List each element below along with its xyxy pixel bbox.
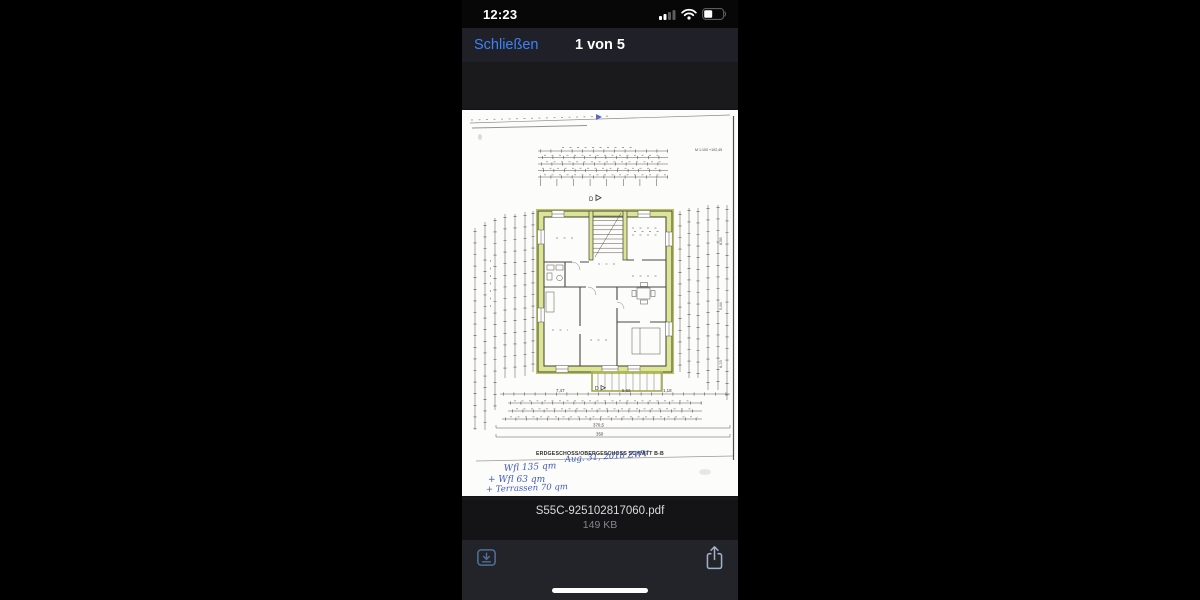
file-name: S55C-925102817060.pdf <box>462 505 738 517</box>
document-page[interactable]: M 1:100 +102,45 <box>462 110 738 496</box>
content-area: M 1:100 +102,45 <box>462 62 738 500</box>
status-bar: 12:23 <box>462 0 738 28</box>
svg-text:5,84: 5,84 <box>718 301 723 310</box>
scale-note: M 1:100 +102,45 <box>695 148 722 152</box>
svg-text:7,47: 7,47 <box>556 388 565 393</box>
handwriting-line3: + Terrassen 70 qm <box>486 482 568 495</box>
download-icon <box>475 546 498 569</box>
left-dimension-chains <box>475 211 533 430</box>
bottom-dimension-chains: 7,47 5,66 1,18 370,5 3 <box>496 388 730 437</box>
status-icons <box>659 8 727 20</box>
file-info-bar: S55C-925102817060.pdf 149 KB <box>462 500 738 540</box>
top-dimension-chains <box>538 148 668 183</box>
close-button[interactable]: Schließen <box>474 37 538 53</box>
status-time: 12:23 <box>483 7 517 22</box>
handwritten-notes: Aug. 31, 2018 ZWV Wfl 135 qm + Wfl 63 qm… <box>486 449 650 495</box>
right-dimension-chains: 8,85 5,84 8,23 <box>680 205 727 400</box>
download-button[interactable] <box>475 546 498 572</box>
screenshot-canvas: 12:23 <box>0 0 1200 600</box>
page-indicator: 1 von 5 <box>575 37 625 53</box>
share-button[interactable] <box>704 544 725 574</box>
svg-text:350: 350 <box>596 432 604 437</box>
svg-text:D: D <box>595 386 599 392</box>
home-indicator[interactable] <box>552 588 648 593</box>
furniture <box>546 265 660 354</box>
battery-icon <box>702 8 727 20</box>
cellular-signal-icon <box>659 9 676 20</box>
section-marker-top: D <box>589 195 601 203</box>
room-labels <box>552 228 662 340</box>
svg-text:1,18: 1,18 <box>663 388 672 393</box>
staircase <box>593 213 623 257</box>
window-openings <box>538 211 673 373</box>
nav-bar: Schließen 1 von 5 <box>462 28 738 62</box>
wifi-icon <box>681 8 697 20</box>
svg-text:370,5: 370,5 <box>593 423 605 428</box>
svg-text:8,23: 8,23 <box>718 359 723 368</box>
share-icon <box>704 544 725 571</box>
file-size: 149 KB <box>462 519 738 531</box>
phone-screen: 12:23 <box>462 0 738 600</box>
svg-text:5,66: 5,66 <box>622 388 631 393</box>
svg-text:8,85: 8,85 <box>718 236 723 245</box>
floor-plan-drawing: M 1:100 +102,45 <box>462 110 738 496</box>
svg-text:D: D <box>589 197 594 203</box>
handwriting-line1: Wfl 135 qm <box>504 461 557 474</box>
